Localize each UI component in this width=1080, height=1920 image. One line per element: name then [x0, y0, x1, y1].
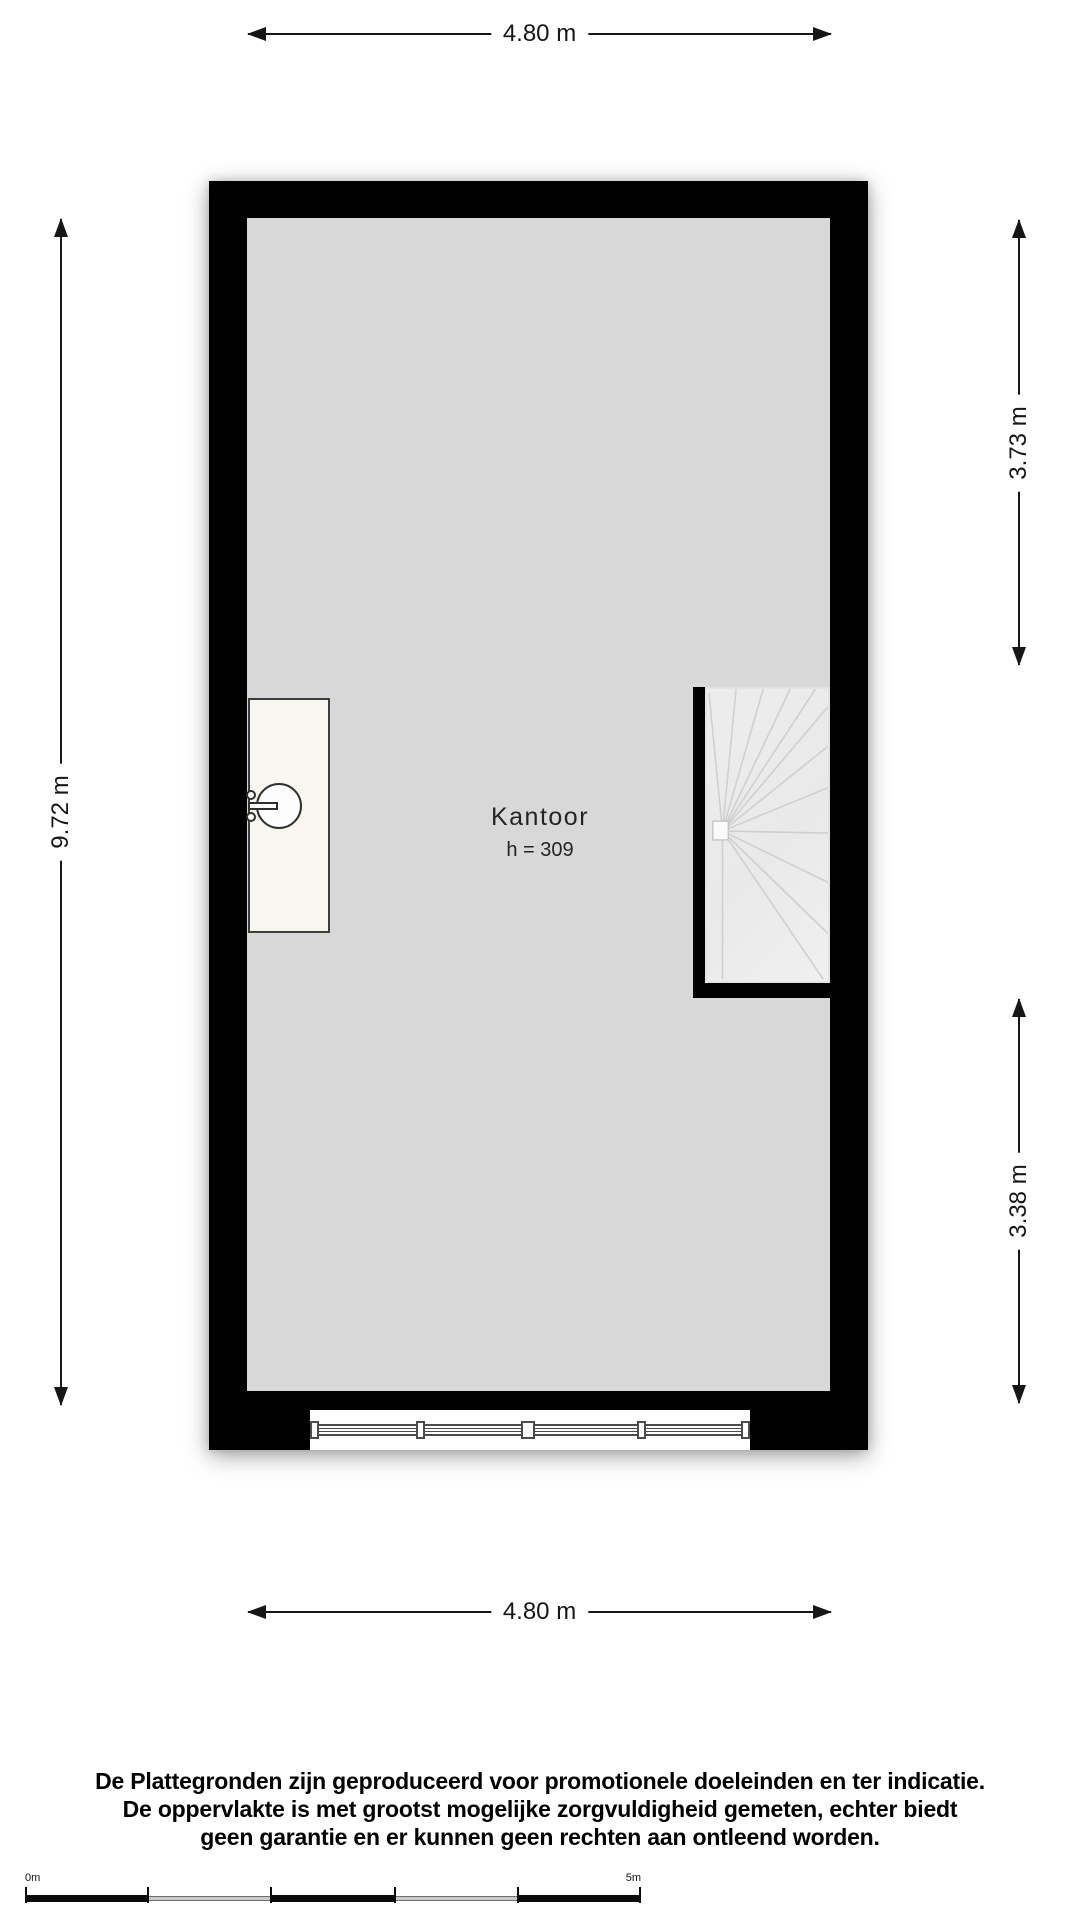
dimension-right-upper-label: 3.73 m [1003, 394, 1035, 491]
scale-segment [518, 1895, 641, 1902]
room-height-label: h = 309 [506, 839, 573, 862]
scale-segment [25, 1895, 148, 1902]
arrowhead-up-icon [1012, 219, 1026, 238]
dimension-right-lower: 3.38 m [1011, 999, 1027, 1403]
arrowhead-down-icon [1012, 1385, 1026, 1404]
room-label: Kantoor [491, 803, 589, 832]
faucet-icon [248, 802, 278, 810]
faucet-knob-icon [246, 812, 256, 822]
arrowhead-up-icon [54, 218, 68, 237]
scale-segment [271, 1895, 395, 1902]
scale-tick [639, 1887, 641, 1903]
arrowhead-down-icon [1012, 647, 1026, 666]
sink-counter [248, 698, 330, 933]
floorplan-page: 4.80 m 4.80 m 9.72 m 3.73 m 3.38 m [0, 0, 1080, 1920]
scale-end-label: 5m [626, 1872, 641, 1884]
scale-track [25, 1895, 641, 1903]
stair-treads-icon [707, 689, 828, 981]
dimension-right-lower-label: 3.38 m [1003, 1152, 1035, 1249]
arrowhead-right-icon [813, 1605, 832, 1619]
disclaimer-line: De oppervlakte is met grootst mogelijke … [0, 1795, 1080, 1823]
arrowhead-left-icon [247, 27, 266, 41]
disclaimer-line: geen garantie en er kunnen geen rechten … [0, 1823, 1080, 1851]
window-mullion [637, 1421, 646, 1439]
disclaimer: De Plattegronden zijn geproduceerd voor … [0, 1767, 1080, 1851]
arrowhead-right-icon [813, 27, 832, 41]
stair-wall [693, 983, 839, 998]
arrowhead-left-icon [247, 1605, 266, 1619]
dimension-right-upper: 3.73 m [1011, 220, 1027, 665]
dimension-bottom-label: 4.80 m [491, 1596, 588, 1628]
scale-tick [25, 1887, 27, 1903]
disclaimer-line: De Plattegronden zijn geproduceerd voor … [0, 1767, 1080, 1795]
dimension-bottom: 4.80 m [248, 1604, 831, 1620]
window-mullion [416, 1421, 425, 1439]
staircase [705, 687, 830, 983]
window [310, 1410, 750, 1450]
window-mullion [310, 1421, 319, 1439]
scale-segment [395, 1896, 518, 1901]
dimension-left-label: 9.72 m [45, 763, 77, 860]
scale-tick [270, 1887, 272, 1903]
scale-tick [147, 1887, 149, 1903]
scale-bar: 0m 5m [25, 1872, 641, 1906]
scale-start-label: 0m [25, 1872, 40, 1884]
stair-wall [693, 687, 705, 997]
faucet-knob-icon [246, 790, 256, 800]
scale-tick [517, 1887, 519, 1903]
arrowhead-up-icon [1012, 998, 1026, 1017]
arrowhead-down-icon [54, 1387, 68, 1406]
scale-tick [394, 1887, 396, 1903]
window-mullion [521, 1421, 535, 1439]
dimension-top-label: 4.80 m [491, 18, 588, 50]
window-mullion [741, 1421, 750, 1439]
dimension-top: 4.80 m [248, 26, 831, 42]
scale-segment [148, 1896, 271, 1901]
dimension-left: 9.72 m [53, 219, 69, 1405]
